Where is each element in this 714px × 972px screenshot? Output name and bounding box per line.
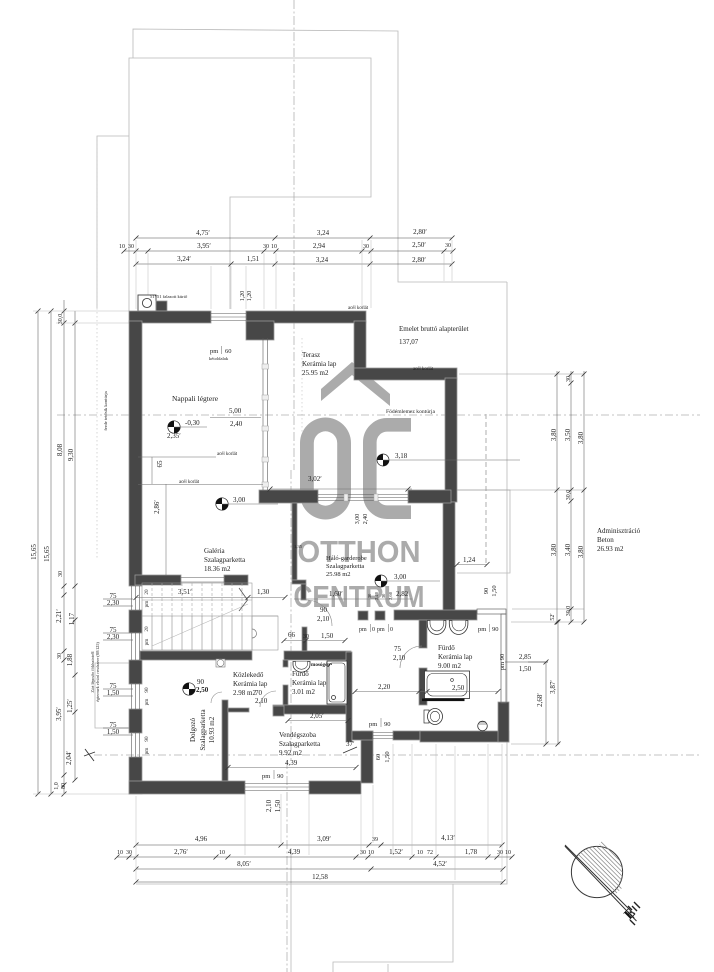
- svg-text:3,87ʹ: 3,87ʹ: [549, 680, 557, 694]
- svg-text:3,80: 3,80: [550, 543, 558, 556]
- svg-text:26.93 m2: 26.93 m2: [597, 545, 624, 553]
- svg-text:3,80: 3,80: [550, 428, 558, 441]
- svg-text:pm 90: pm 90: [499, 654, 506, 670]
- svg-text:Közlekedő: Közlekedő: [233, 671, 264, 679]
- svg-text:30: 30: [360, 850, 366, 856]
- svg-text:Nappali légtere: Nappali légtere: [172, 394, 219, 403]
- svg-text:Fürdő: Fürdő: [438, 644, 455, 652]
- svg-text:4,75ʹ: 4,75ʹ: [196, 229, 210, 237]
- svg-text:3.01 m2: 3.01 m2: [292, 688, 315, 696]
- svg-text:2,30: 2,30: [107, 633, 120, 641]
- svg-text:0: 0: [390, 627, 393, 633]
- svg-text:90: 90: [197, 678, 205, 686]
- svg-text:8,05ʹ: 8,05ʹ: [237, 860, 251, 868]
- svg-text:20: 20: [144, 589, 150, 595]
- svg-text:pm: pm: [144, 748, 150, 755]
- svg-text:3,24: 3,24: [316, 256, 329, 264]
- svg-text:3,80: 3,80: [577, 431, 585, 444]
- svg-text:Szalagparketta: Szalagparketta: [199, 709, 207, 751]
- svg-text:9,30: 9,30: [67, 448, 75, 461]
- svg-text:10.93 m2: 10.93 m2: [208, 716, 216, 743]
- svg-text:Dolgozó: Dolgozó: [189, 717, 197, 742]
- svg-text:10: 10: [417, 850, 423, 856]
- svg-text:0: 0: [372, 627, 375, 633]
- svg-text:2,21ʹ: 2,21ʹ: [55, 609, 63, 623]
- svg-text:15,65: 15,65: [43, 546, 51, 562]
- svg-text:1,51: 1,51: [247, 255, 260, 263]
- svg-text:25.95 m2: 25.95 m2: [302, 369, 329, 377]
- svg-text:5,00: 5,00: [229, 407, 242, 415]
- svg-text:30: 30: [363, 244, 369, 250]
- svg-text:Háló-garderobe: Háló-garderobe: [326, 555, 367, 562]
- svg-text:90: 90: [492, 626, 499, 633]
- svg-text:3,80: 3,80: [577, 545, 585, 558]
- svg-text:12,58: 12,58: [312, 873, 328, 881]
- svg-text:2,10: 2,10: [265, 799, 273, 812]
- svg-text:Szalagparketta: Szalagparketta: [279, 740, 321, 748]
- svg-text:39: 39: [372, 837, 378, 843]
- svg-text:Adminisztráció: Adminisztráció: [597, 527, 641, 535]
- svg-text:2,20: 2,20: [378, 683, 391, 691]
- svg-text:Szalagparketta: Szalagparketta: [204, 556, 246, 564]
- svg-text:52ʹ: 52ʹ: [549, 613, 556, 621]
- svg-text:2,80ʹ: 2,80ʹ: [412, 256, 426, 264]
- svg-text:Szalagparketta: Szalagparketta: [326, 563, 364, 570]
- svg-text:Emelet bruttó alapterület: Emelet bruttó alapterület: [399, 325, 469, 333]
- svg-text:10: 10: [505, 850, 511, 856]
- svg-text:25.98 m2: 25.98 m2: [326, 571, 351, 578]
- svg-text:80: 80: [61, 783, 67, 789]
- svg-text:Födémlemez kontúrja: Födémlemez kontúrja: [386, 409, 435, 415]
- svg-text:15,65: 15,65: [30, 544, 38, 560]
- svg-text:90: 90: [384, 721, 391, 728]
- svg-text:3,00: 3,00: [355, 514, 361, 525]
- svg-text:1,50: 1,50: [274, 799, 282, 812]
- svg-text:3,02ʹ: 3,02ʹ: [308, 475, 322, 483]
- svg-text:3,40: 3,40: [564, 543, 572, 556]
- svg-text:60: 60: [375, 754, 382, 761]
- svg-text:pm: pm: [369, 721, 377, 728]
- svg-text:3,51ʹ: 3,51ʹ: [178, 588, 192, 596]
- svg-text:Fürdő: Fürdő: [292, 670, 309, 678]
- svg-text:acél korlát: acél korlát: [413, 367, 434, 372]
- svg-text:30,0: 30,0: [58, 314, 64, 325]
- svg-text:2,94: 2,94: [313, 242, 326, 250]
- svg-text:égtermek elvárd rendszere (80/: égtermek elvárd rendszere (80/125): [95, 642, 100, 702]
- svg-text:3,09ʹ: 3,09ʹ: [317, 835, 331, 843]
- svg-text:8,08: 8,08: [56, 443, 64, 456]
- svg-text:20: 20: [144, 626, 150, 632]
- svg-text:90: 90: [320, 606, 328, 614]
- svg-text:2,85: 2,85: [519, 653, 532, 661]
- svg-text:2,10: 2,10: [255, 697, 268, 705]
- svg-text:3,24: 3,24: [317, 229, 330, 237]
- svg-text:1,24: 1,24: [463, 556, 476, 564]
- svg-text:1,25ʹ: 1,25ʹ: [66, 699, 74, 713]
- svg-text:2,40: 2,40: [230, 420, 243, 428]
- svg-text:1,50: 1,50: [519, 665, 532, 673]
- svg-text:mosógép•: mosógép•: [311, 662, 332, 668]
- svg-text:1,50: 1,50: [321, 632, 334, 640]
- svg-text:3,00: 3,00: [233, 496, 246, 504]
- svg-text:30: 30: [497, 850, 503, 856]
- svg-text:9.92 m2: 9.92 m2: [279, 749, 302, 757]
- svg-text:3,95ʹ: 3,95ʹ: [55, 707, 63, 721]
- svg-text:60: 60: [225, 348, 232, 355]
- svg-text:2,40: 2,40: [363, 514, 369, 525]
- svg-text:3,50: 3,50: [564, 428, 572, 441]
- svg-text:30: 30: [57, 653, 63, 659]
- svg-text:2,86ʹ: 2,86ʹ: [153, 500, 161, 514]
- svg-text:10: 10: [271, 244, 277, 250]
- svg-text:pm: pm: [144, 699, 150, 706]
- svg-text:2,35ʹ: 2,35ʹ: [167, 432, 181, 440]
- svg-text:2,10: 2,10: [393, 654, 406, 662]
- svg-text:pm: pm: [144, 601, 150, 608]
- svg-text:2,50ʹ: 2,50ʹ: [412, 241, 426, 249]
- svg-text:72: 72: [427, 850, 433, 856]
- svg-text:Kerámia lap: Kerámia lap: [233, 680, 268, 688]
- svg-text:acél korlát: acél korlát: [179, 480, 200, 485]
- svg-text:10: 10: [368, 850, 374, 856]
- svg-text:1,78: 1,78: [465, 848, 478, 856]
- svg-text:pm: pm: [478, 626, 486, 633]
- svg-text:90: 90: [277, 773, 284, 780]
- svg-text:pm: pm: [262, 773, 270, 780]
- svg-text:30,0: 30,0: [566, 490, 572, 501]
- svg-text:30: 30: [128, 244, 134, 250]
- svg-text:Kerámia lap: Kerámia lap: [292, 679, 327, 687]
- svg-text:Terasz: Terasz: [302, 351, 320, 359]
- svg-text:90: 90: [144, 687, 150, 693]
- svg-text:30: 30: [367, 593, 372, 598]
- svg-text:3,24ʹ: 3,24ʹ: [177, 255, 191, 263]
- svg-text:18.36 m2: 18.36 m2: [204, 565, 231, 573]
- svg-text:1,20: 1,20: [247, 291, 253, 302]
- svg-text:30: 30: [566, 376, 572, 382]
- svg-text:Vendégszoba: Vendégszoba: [279, 731, 317, 739]
- svg-text:51*51 falazott kürtő: 51*51 falazott kürtő: [150, 294, 188, 299]
- svg-text:acél korlát: acél korlát: [348, 306, 369, 311]
- svg-text:90: 90: [483, 588, 490, 595]
- svg-text:1,50: 1,50: [384, 751, 391, 762]
- svg-text:4,52ʹ: 4,52ʹ: [433, 860, 447, 868]
- svg-text:2,68ʹ: 2,68ʹ: [536, 693, 544, 707]
- svg-text:10: 10: [117, 850, 123, 856]
- svg-text:pm: pm: [144, 639, 150, 646]
- svg-text:1,30: 1,30: [257, 588, 270, 596]
- svg-text:4,39: 4,39: [285, 759, 298, 767]
- svg-text:Galéria: Galéria: [204, 547, 225, 555]
- svg-text:1,50: 1,50: [107, 728, 120, 736]
- svg-text:3,00: 3,00: [394, 573, 407, 581]
- svg-text:2,50: 2,50: [452, 684, 465, 692]
- svg-text:30: 30: [58, 571, 64, 577]
- svg-text:4,96: 4,96: [195, 835, 208, 843]
- svg-text:75: 75: [394, 645, 402, 653]
- svg-text:pm: pm: [377, 627, 385, 633]
- svg-text:2,50: 2,50: [196, 686, 209, 694]
- svg-text:Beton: Beton: [597, 536, 614, 544]
- svg-text:1,60ʹ: 1,60ʹ: [329, 590, 343, 598]
- svg-text:1,20: 1,20: [240, 291, 246, 302]
- svg-text:9.00 m2: 9.00 m2: [438, 662, 461, 670]
- svg-text:pm: pm: [210, 348, 218, 355]
- svg-text:90: 90: [144, 736, 150, 742]
- svg-text:acél korlát: acél korlát: [217, 452, 238, 457]
- svg-text:-0,30: -0,30: [185, 419, 200, 427]
- svg-text:pm: pm: [359, 627, 367, 633]
- svg-text:70: 70: [255, 689, 263, 697]
- svg-text:ferde tetősík kontúrja: ferde tetősík kontúrja: [103, 391, 108, 430]
- svg-text:1,0: 1,0: [54, 782, 60, 790]
- svg-text:30: 30: [126, 850, 132, 856]
- svg-text:10: 10: [119, 244, 125, 250]
- svg-text:2,30: 2,30: [107, 599, 120, 607]
- svg-text:66: 66: [288, 631, 296, 639]
- svg-text:1,88: 1,88: [66, 653, 74, 666]
- svg-text:2,76ʹ: 2,76ʹ: [174, 848, 188, 856]
- svg-text:2,82: 2,82: [396, 590, 409, 598]
- svg-text:30,0: 30,0: [566, 606, 572, 617]
- svg-text:30: 30: [381, 593, 386, 598]
- svg-text:30: 30: [445, 243, 451, 249]
- svg-text:1,50: 1,50: [491, 585, 498, 596]
- svg-text:2,05ʹ: 2,05ʹ: [310, 712, 324, 720]
- svg-text:37ʹ: 37ʹ: [346, 740, 355, 748]
- svg-text:30: 30: [263, 244, 269, 250]
- svg-text:2,10: 2,10: [317, 615, 330, 623]
- svg-text:10: 10: [219, 850, 225, 856]
- svg-text:137,07: 137,07: [399, 338, 419, 346]
- svg-text:4,39: 4,39: [288, 848, 301, 856]
- svg-text:65: 65: [156, 460, 164, 468]
- svg-text:1,50: 1,50: [107, 689, 120, 697]
- svg-text:kétoldalak: kétoldalak: [209, 356, 229, 361]
- svg-text:3,95ʹ: 3,95ʹ: [197, 242, 211, 250]
- svg-text:4,13ʹ: 4,13ʹ: [441, 834, 455, 842]
- svg-text:3,18: 3,18: [395, 452, 408, 460]
- svg-text:1,52ʹ: 1,52ʹ: [389, 848, 403, 856]
- svg-text:2,04ʹ: 2,04ʹ: [65, 751, 73, 765]
- svg-text:2,80ʹ: 2,80ʹ: [413, 228, 427, 236]
- svg-text:Kerámia lap: Kerámia lap: [302, 360, 337, 368]
- svg-text:30: 30: [303, 634, 309, 640]
- svg-text:1,17: 1,17: [68, 612, 76, 625]
- svg-text:Kerámia lap: Kerámia lap: [438, 653, 473, 661]
- svg-text:2.98 m2: 2.98 m2: [233, 689, 256, 697]
